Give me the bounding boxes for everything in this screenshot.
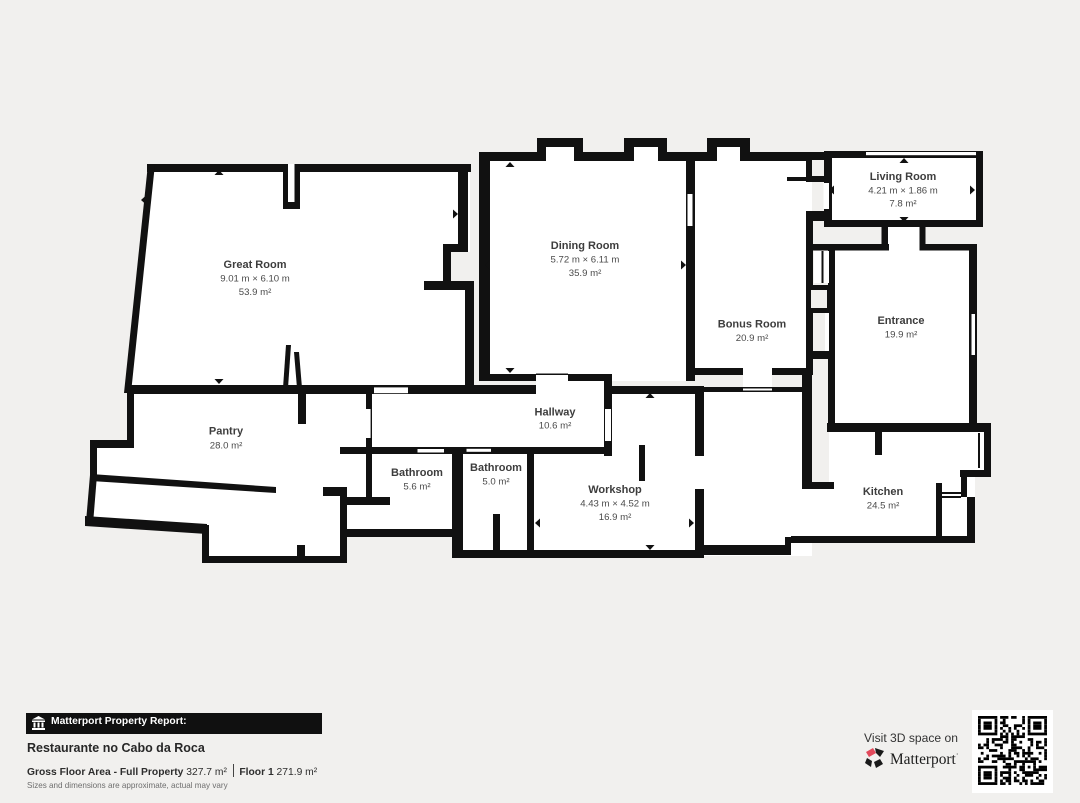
svg-text:19.9 m²: 19.9 m²	[885, 330, 918, 341]
svg-text:9.01 m × 6.10 m: 9.01 m × 6.10 m	[220, 274, 290, 285]
svg-text:4.43 m × 4.52 m: 4.43 m × 4.52 m	[580, 499, 650, 510]
svg-text:Hallway: Hallway	[535, 407, 577, 419]
svg-text:Bonus Room: Bonus Room	[718, 319, 787, 331]
svg-text:Kitchen: Kitchen	[863, 486, 904, 498]
svg-text:35.9 m²: 35.9 m²	[569, 268, 602, 279]
svg-text:10.6 m²: 10.6 m²	[539, 421, 572, 432]
svg-text:5.6 m²: 5.6 m²	[403, 482, 431, 493]
svg-text:20.9 m²: 20.9 m²	[736, 333, 769, 344]
svg-text:24.5 m²: 24.5 m²	[867, 501, 900, 512]
svg-text:5.72 m × 6.11 m: 5.72 m × 6.11 m	[551, 255, 620, 266]
svg-text:53.9 m²: 53.9 m²	[239, 287, 272, 298]
svg-text:Dining Room: Dining Room	[551, 240, 620, 252]
svg-text:Workshop: Workshop	[588, 484, 642, 496]
svg-text:5.0 m²: 5.0 m²	[482, 477, 510, 488]
svg-text:Pantry: Pantry	[209, 426, 244, 438]
svg-text:Living Room: Living Room	[870, 171, 937, 183]
svg-text:Entrance: Entrance	[877, 315, 924, 327]
svg-text:Bathroom: Bathroom	[391, 467, 443, 479]
svg-text:28.0 m²: 28.0 m²	[210, 441, 243, 452]
svg-text:Great Room: Great Room	[224, 259, 287, 271]
svg-text:7.8 m²: 7.8 m²	[889, 199, 917, 210]
svg-text:Bathroom: Bathroom	[470, 462, 522, 474]
svg-text:4.21 m × 1.86 m: 4.21 m × 1.86 m	[868, 186, 938, 197]
svg-text:16.9 m²: 16.9 m²	[599, 512, 632, 523]
